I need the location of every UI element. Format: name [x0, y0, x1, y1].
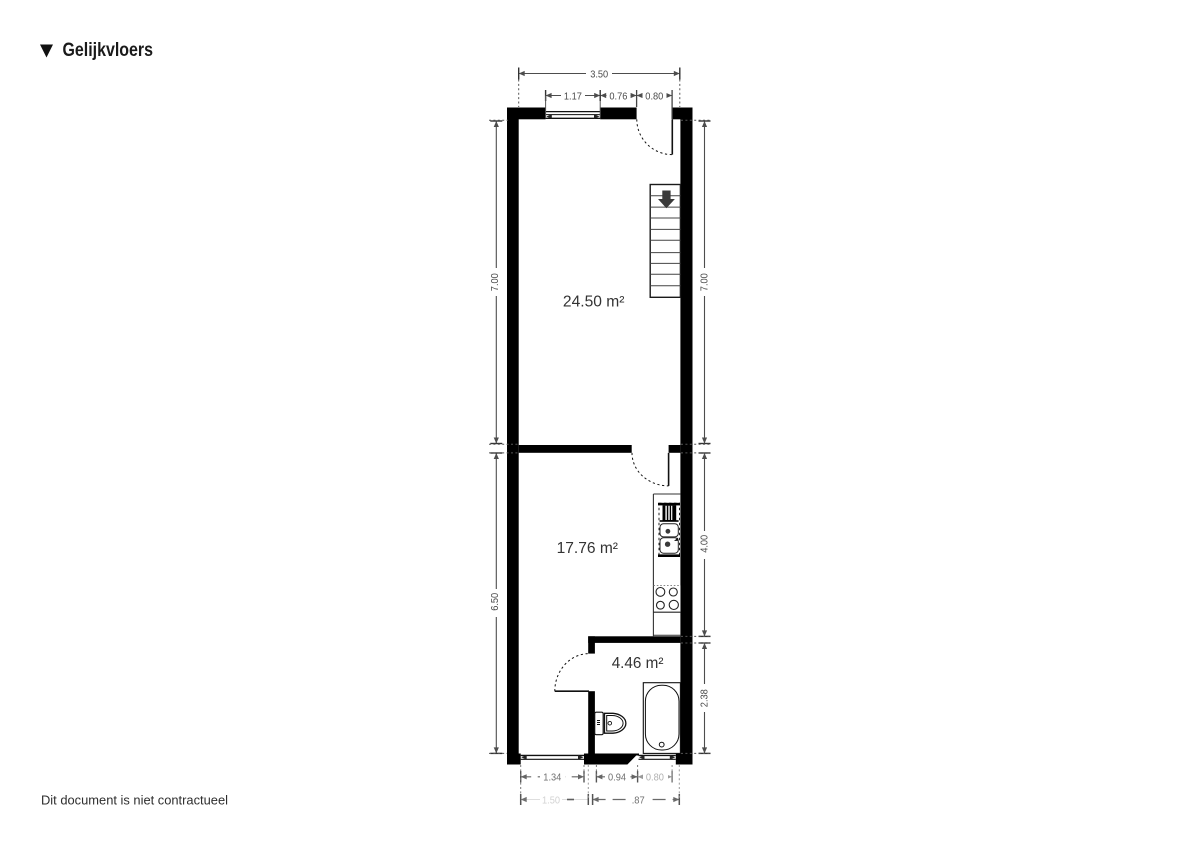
svg-text:1.34: 1.34: [543, 772, 561, 784]
svg-text:4.46 m²: 4.46 m²: [612, 655, 664, 672]
svg-text:6.50: 6.50: [489, 593, 501, 611]
svg-text:0.80: 0.80: [646, 772, 664, 784]
svg-text:.87: .87: [632, 794, 645, 806]
svg-text:0.80: 0.80: [645, 90, 663, 102]
svg-text:1.17: 1.17: [564, 90, 582, 102]
svg-text:Gelijkvloers: Gelijkvloers: [63, 40, 154, 61]
svg-text:7.00: 7.00: [489, 273, 501, 291]
svg-text:0.76: 0.76: [609, 90, 627, 102]
svg-text:17.76 m²: 17.76 m²: [557, 540, 618, 557]
svg-text:1.50: 1.50: [542, 794, 560, 806]
svg-text:0.94: 0.94: [608, 772, 626, 784]
svg-text:2.38: 2.38: [699, 689, 711, 707]
svg-text:7.00: 7.00: [699, 273, 711, 291]
svg-text:3.50: 3.50: [590, 68, 608, 80]
svg-text:4.00: 4.00: [699, 535, 711, 553]
svg-text:24.50 m²: 24.50 m²: [563, 294, 625, 311]
svg-text:Dit document is niet contractu: Dit document is niet contractueel: [41, 793, 228, 808]
